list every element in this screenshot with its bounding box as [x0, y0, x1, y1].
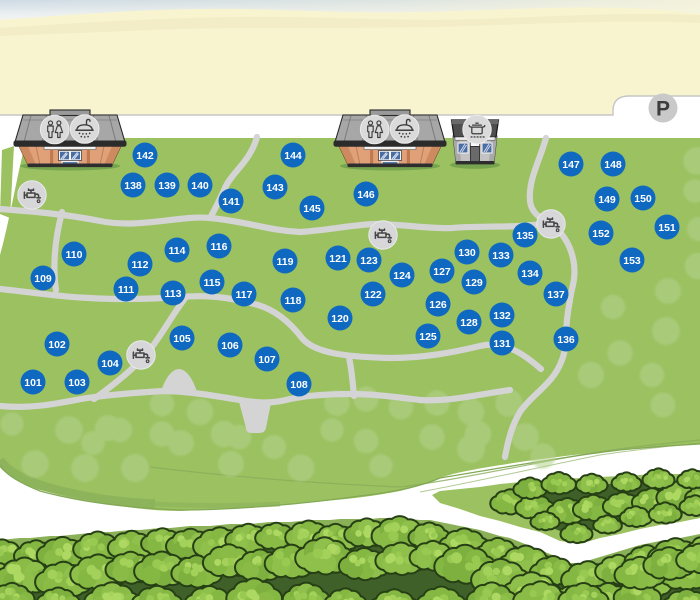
svg-text:112: 112	[132, 259, 149, 271]
svg-text:122: 122	[364, 289, 382, 301]
svg-text:135: 135	[516, 230, 534, 242]
svg-text:141: 141	[222, 196, 240, 208]
svg-text:116: 116	[211, 241, 228, 253]
svg-text:146: 146	[357, 189, 375, 201]
svg-text:139: 139	[158, 180, 176, 192]
svg-text:138: 138	[124, 180, 142, 192]
svg-text:108: 108	[290, 379, 308, 391]
svg-text:147: 147	[562, 159, 580, 171]
svg-text:105: 105	[173, 333, 191, 345]
svg-text:110: 110	[66, 249, 83, 261]
svg-text:144: 144	[284, 150, 302, 162]
svg-text:117: 117	[236, 289, 253, 301]
svg-text:109: 109	[34, 273, 52, 285]
svg-text:148: 148	[604, 159, 622, 171]
svg-text:125: 125	[419, 331, 437, 343]
svg-text:129: 129	[465, 277, 483, 289]
svg-text:137: 137	[547, 289, 565, 301]
svg-text:143: 143	[266, 182, 284, 194]
svg-text:153: 153	[623, 255, 641, 267]
svg-text:150: 150	[634, 193, 652, 205]
svg-text:121: 121	[329, 253, 347, 265]
svg-text:101: 101	[24, 377, 42, 389]
svg-text:149: 149	[598, 194, 616, 206]
svg-text:134: 134	[521, 268, 539, 280]
svg-text:133: 133	[492, 250, 510, 262]
svg-text:126: 126	[429, 299, 447, 311]
svg-text:140: 140	[191, 180, 209, 192]
svg-text:119: 119	[277, 256, 294, 268]
svg-text:123: 123	[360, 255, 378, 267]
svg-text:145: 145	[303, 203, 321, 215]
svg-text:151: 151	[658, 222, 676, 234]
svg-text:113: 113	[165, 288, 182, 300]
svg-text:102: 102	[48, 339, 66, 351]
svg-text:P: P	[656, 98, 670, 121]
svg-text:107: 107	[258, 354, 276, 366]
svg-text:114: 114	[169, 245, 186, 257]
svg-text:136: 136	[557, 334, 575, 346]
svg-text:111: 111	[118, 284, 135, 296]
svg-text:106: 106	[221, 340, 239, 352]
svg-text:152: 152	[592, 228, 610, 240]
svg-text:103: 103	[68, 377, 86, 389]
svg-text:120: 120	[331, 313, 349, 325]
svg-text:130: 130	[458, 247, 476, 259]
svg-text:142: 142	[136, 150, 154, 162]
svg-text:127: 127	[433, 266, 451, 278]
svg-text:115: 115	[204, 277, 221, 289]
svg-text:118: 118	[285, 295, 302, 307]
svg-text:132: 132	[493, 310, 511, 322]
svg-text:124: 124	[393, 270, 411, 282]
svg-text:104: 104	[101, 358, 119, 370]
svg-text:131: 131	[493, 338, 511, 350]
svg-text:128: 128	[460, 317, 478, 329]
